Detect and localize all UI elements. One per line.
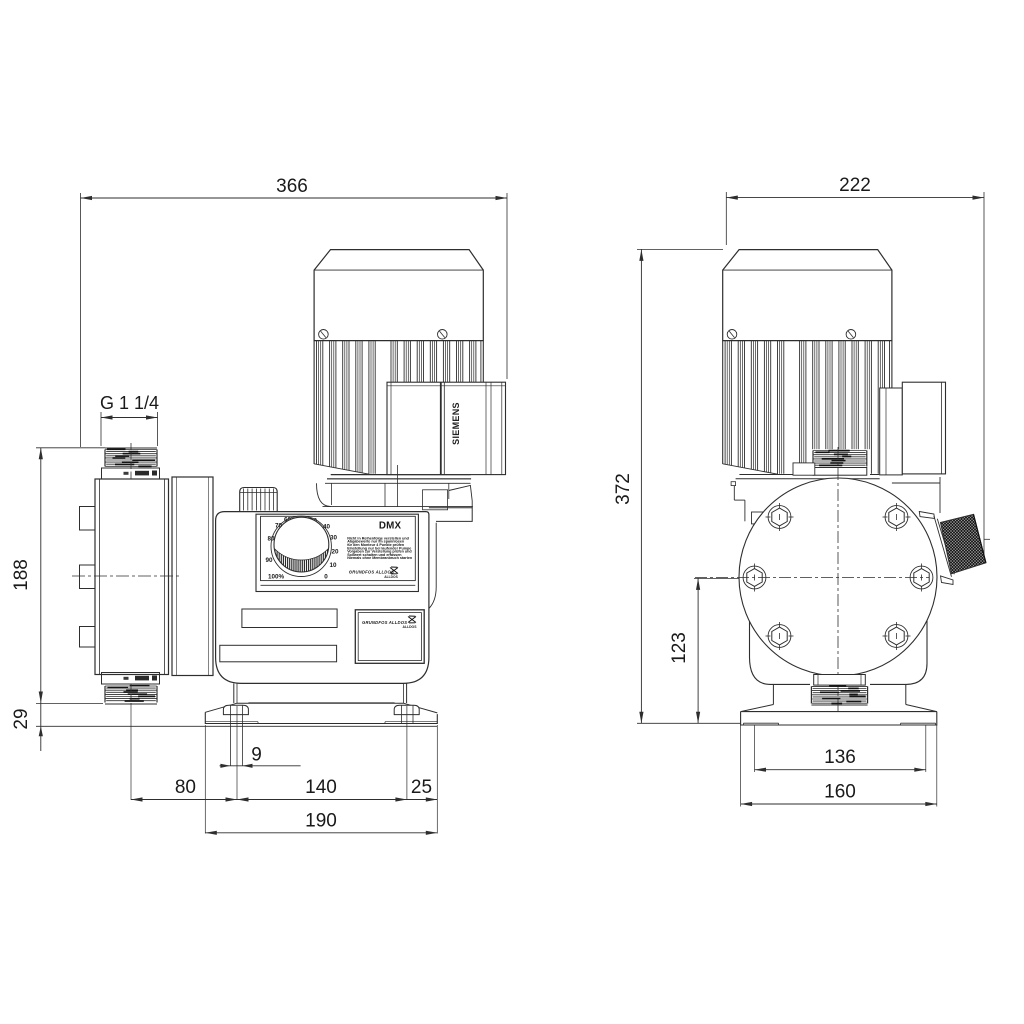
svg-text:123: 123 <box>669 632 690 664</box>
svg-text:366: 366 <box>276 176 308 197</box>
svg-text:190: 190 <box>305 811 337 832</box>
svg-text:10: 10 <box>329 562 337 569</box>
svg-text:DMX: DMX <box>379 521 402 532</box>
svg-text:ALLDOS: ALLDOS <box>384 575 398 579</box>
svg-text:222: 222 <box>839 175 871 196</box>
svg-text:29: 29 <box>11 708 32 729</box>
svg-text:160: 160 <box>824 782 856 803</box>
svg-text:ALLDOS: ALLDOS <box>403 625 418 629</box>
svg-text:80: 80 <box>267 536 275 543</box>
svg-text:Niemals ohne Membranbruch star: Niemals ohne Membranbruch starten <box>347 556 413 560</box>
svg-text:40: 40 <box>323 524 331 531</box>
svg-text:188: 188 <box>11 559 32 591</box>
svg-text:9: 9 <box>251 745 262 766</box>
svg-text:90: 90 <box>265 557 273 564</box>
svg-text:372: 372 <box>613 473 634 505</box>
svg-text:140: 140 <box>305 777 337 798</box>
svg-text:G 1 1/4: G 1 1/4 <box>100 393 159 413</box>
svg-text:80: 80 <box>175 777 196 798</box>
svg-text:25: 25 <box>411 777 432 798</box>
svg-text:100%: 100% <box>268 574 285 581</box>
svg-text:70: 70 <box>275 523 283 530</box>
svg-text:GRUNDFOS ALLDOS: GRUNDFOS ALLDOS <box>362 620 407 625</box>
svg-text:30: 30 <box>330 535 338 542</box>
svg-text:0: 0 <box>324 574 328 581</box>
svg-text:20: 20 <box>331 549 339 556</box>
svg-text:136: 136 <box>824 747 856 768</box>
svg-text:SIEMENS: SIEMENS <box>451 402 461 445</box>
